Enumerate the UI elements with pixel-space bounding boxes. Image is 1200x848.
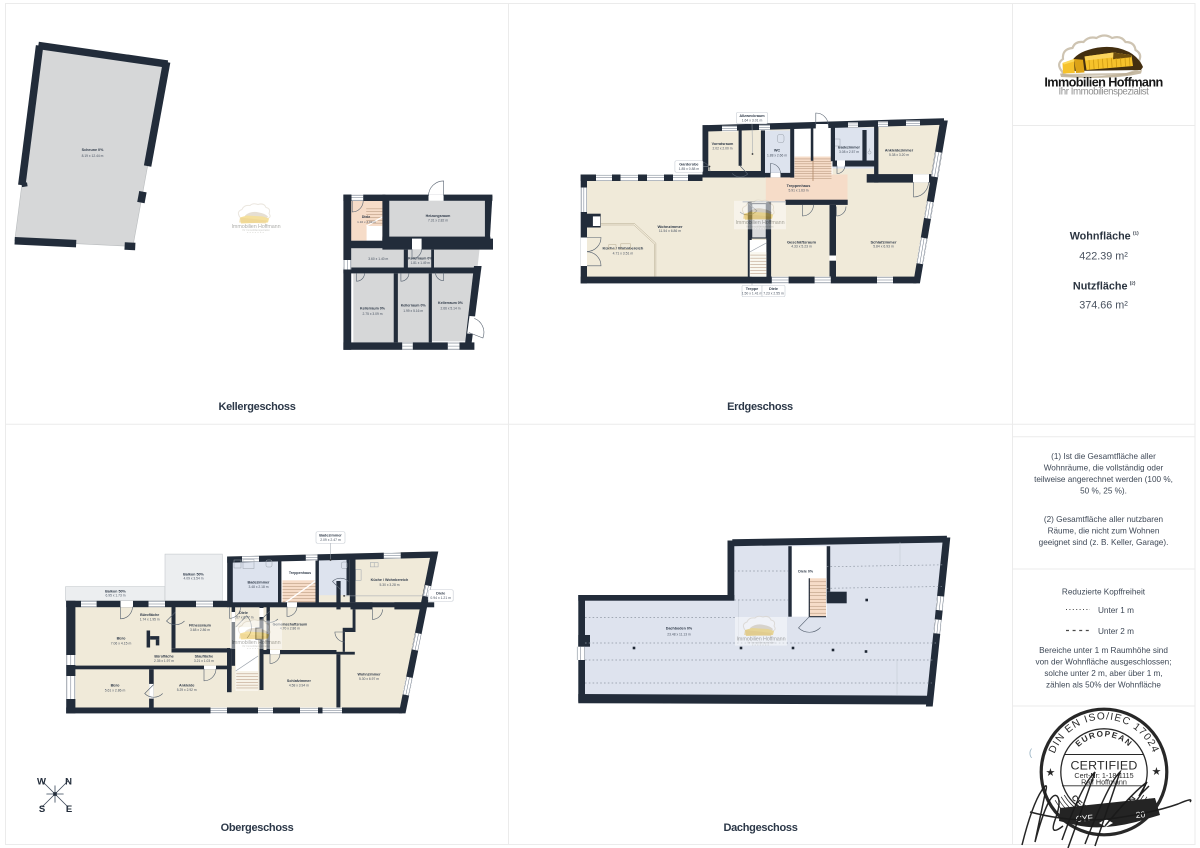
svg-text:4.71 x 3.51 m: 4.71 x 3.51 m	[613, 251, 634, 255]
svg-text:5.29 x 2.92 m: 5.29 x 2.92 m	[177, 688, 197, 692]
svg-text:1.64 x 3.01 m: 1.64 x 3.01 m	[742, 118, 763, 122]
svg-text:Badezimmer: Badezimmer	[319, 534, 342, 538]
svg-text:E: E	[66, 804, 72, 815]
svg-text:Ihr Immobilienspezialist: Ihr Immobilienspezialist	[1059, 86, 1150, 97]
svg-text:W: W	[37, 777, 46, 788]
svg-text:7.23 x 2.55 m: 7.23 x 2.55 m	[763, 291, 784, 295]
svg-text:Reduzierte Kopffreiheit: Reduzierte Kopffreiheit	[1062, 588, 1146, 597]
svg-text:2.75 x 3.09 m: 2.75 x 3.09 m	[363, 312, 383, 316]
svg-text:Ihr Immobilienspezialist: Ihr Immobilienspezialist	[243, 228, 270, 232]
svg-text:2.35 x 1.97 m: 2.35 x 1.97 m	[154, 659, 174, 663]
svg-text:Schlafzimmer: Schlafzimmer	[287, 679, 312, 683]
svg-text:Obergeschoss: Obergeschoss	[221, 822, 294, 834]
svg-text:8.19 x 12.44 m: 8.19 x 12.44 m	[82, 154, 104, 158]
svg-text:Ihr Immobilienspezialist: Ihr Immobilienspezialist	[243, 644, 270, 648]
svg-text:50 %, 25 %).: 50 %, 25 %).	[1080, 486, 1127, 495]
svg-text:Vorratsraum: Vorratsraum	[712, 142, 734, 146]
svg-text:5.30 x 6.97 m: 5.30 x 6.97 m	[359, 677, 379, 681]
svg-text:Treppenhaus: Treppenhaus	[787, 184, 811, 188]
svg-text:★: ★	[1152, 766, 1162, 778]
svg-text:Staufläche: Staufläche	[195, 655, 214, 659]
svg-text:Erdgeschoss: Erdgeschoss	[727, 401, 793, 413]
svg-text:Dachboden 0%: Dachboden 0%	[666, 626, 693, 630]
svg-text:Geschäftsraum: Geschäftsraum	[787, 239, 817, 244]
svg-text:geeignet sind (z. B. Keller, G: geeignet sind (z. B. Keller, Garage).	[1039, 538, 1169, 547]
svg-text:Bürofläche: Bürofläche	[154, 655, 173, 659]
svg-text:Heizungsraum: Heizungsraum	[426, 214, 451, 218]
svg-text:1.74 x 1.95 m: 1.74 x 1.95 m	[140, 618, 160, 622]
svg-text:3.48 x 2.18 m: 3.48 x 2.18 m	[249, 585, 269, 589]
svg-text:Bereiche unter 1 m Raumhöhe si: Bereiche unter 1 m Raumhöhe sind	[1039, 646, 1168, 655]
svg-text:Wohnräume, die vollständig ode: Wohnräume, die vollständig oder	[1044, 464, 1164, 473]
svg-text:1.81 x 1.49 m: 1.81 x 1.49 m	[411, 261, 431, 265]
svg-text:2.66 x 5.14 m: 2.66 x 5.14 m	[441, 306, 461, 310]
svg-text:von der Wohnfläche ausgeschlos: von der Wohnfläche ausgeschlossen;	[1036, 658, 1172, 667]
svg-text:Diele 0%: Diele 0%	[798, 569, 814, 573]
svg-text:Küche / Wohnbereich: Küche / Wohnbereich	[371, 578, 409, 582]
svg-text:Badezimmer: Badezimmer	[838, 146, 860, 150]
svg-text:1.99 x 5.16 m: 1.99 x 5.16 m	[403, 309, 423, 313]
svg-text:422.39 m²: 422.39 m²	[1079, 251, 1128, 263]
svg-text:WC: WC	[774, 149, 781, 153]
svg-text:1.85 x 0.88 m: 1.85 x 0.88 m	[679, 167, 700, 171]
svg-text:Diele: Diele	[436, 592, 445, 596]
svg-text:solche unter 2 m, aber über 1: solche unter 2 m, aber über 1 m,	[1044, 669, 1162, 678]
svg-text:4.33 x 5.23 m: 4.33 x 5.23 m	[791, 245, 812, 249]
svg-text:7.06 x 4.15 m: 7.06 x 4.15 m	[111, 641, 132, 645]
svg-text:Kellergeschoss: Kellergeschoss	[218, 401, 295, 413]
svg-text:1.88 x 2.66 m: 1.88 x 2.66 m	[767, 153, 787, 157]
svg-text:Fitnessraum: Fitnessraum	[189, 624, 212, 628]
svg-text:Balkon 50%: Balkon 50%	[105, 589, 126, 593]
svg-text:Ankleidezimmer: Ankleidezimmer	[885, 149, 914, 153]
svg-text:5.38 x 3.20 m: 5.38 x 3.20 m	[889, 153, 909, 157]
svg-text:N: N	[65, 777, 72, 788]
svg-text:Garderobe: Garderobe	[679, 163, 698, 167]
svg-text:Allzweckraum: Allzweckraum	[739, 114, 765, 118]
svg-text:Diele: Diele	[239, 611, 248, 615]
svg-text:S: S	[39, 804, 45, 815]
svg-text:Badezimmer: Badezimmer	[248, 581, 270, 585]
svg-text:Unter 2 m: Unter 2 m	[1098, 627, 1134, 636]
svg-text:Schlafzimmer: Schlafzimmer	[870, 239, 896, 244]
svg-text:6.95 x 1.73 m: 6.95 x 1.73 m	[106, 594, 126, 598]
svg-text:2.02 x 2.00 m: 2.02 x 2.00 m	[713, 146, 733, 150]
svg-text:Ihr Immobilienspezialist: Ihr Immobilienspezialist	[748, 641, 775, 645]
svg-text:3.21 x 1.03 m: 3.21 x 1.03 m	[194, 659, 214, 663]
svg-text:3.68 x 2.86 m: 3.68 x 2.86 m	[190, 628, 210, 632]
svg-text:(2) Gesamtfläche aller nutzbar: (2) Gesamtfläche aller nutzbaren	[1044, 515, 1164, 524]
svg-text:Wohnfläche: Wohnfläche	[1070, 231, 1131, 243]
svg-text:Balkon 50%: Balkon 50%	[183, 572, 204, 576]
svg-text:Diele: Diele	[769, 287, 778, 291]
svg-text:23.48 x 11.13 m: 23.48 x 11.13 m	[667, 633, 691, 637]
svg-text:(1): (1)	[1133, 230, 1139, 235]
svg-text:11.54 x 6.86 m: 11.54 x 6.86 m	[659, 229, 681, 233]
svg-text:5.91 x 1.63 m: 5.91 x 1.63 m	[789, 189, 809, 193]
svg-text:2.09 x 2.47 m: 2.09 x 2.47 m	[320, 538, 341, 542]
svg-text:374.66 m²: 374.66 m²	[1079, 300, 1128, 312]
svg-text:Dachgeschoss: Dachgeschoss	[723, 822, 797, 834]
svg-text:Ihr Immobilienspezialist: Ihr Immobilienspezialist	[747, 224, 774, 228]
svg-text:Büro: Büro	[111, 684, 121, 688]
svg-text:Ankleide: Ankleide	[179, 684, 194, 688]
svg-text:(2): (2)	[1130, 280, 1136, 285]
svg-text:Treppe: Treppe	[746, 287, 758, 291]
svg-text:Kellerraum 0%: Kellerraum 0%	[360, 307, 386, 311]
svg-text:Treppenhaus: Treppenhaus	[289, 571, 311, 575]
svg-text:Unter 1 m: Unter 1 m	[1098, 606, 1134, 615]
svg-text:5.30 x 3.28 m: 5.30 x 3.28 m	[380, 583, 400, 587]
svg-text:zählen als 50% der Wohnfläche: zählen als 50% der Wohnfläche	[1046, 680, 1161, 689]
svg-text:1.50 x 1.41 m: 1.50 x 1.41 m	[742, 291, 763, 295]
svg-text:5.84 x 6.93 m: 5.84 x 6.93 m	[873, 245, 894, 249]
svg-text:1.16 x 3.99 m: 1.16 x 3.99 m	[357, 220, 376, 224]
svg-text:Büro: Büro	[117, 637, 127, 641]
svg-text:Wohnzimmer: Wohnzimmer	[357, 672, 381, 676]
svg-text:Diele: Diele	[362, 215, 370, 219]
svg-text:4.09 x 3.54 m: 4.09 x 3.54 m	[184, 577, 204, 581]
svg-text:Räume, die nicht zum Wohnen: Räume, die nicht zum Wohnen	[1048, 527, 1160, 536]
svg-text:3.60 x 1.40 m: 3.60 x 1.40 m	[368, 257, 388, 261]
svg-text:4.70 x 2.86 m: 4.70 x 2.86 m	[280, 627, 300, 631]
svg-text:3.08 x 2.57 m: 3.08 x 2.57 m	[839, 150, 859, 154]
svg-text:7.31 x 2.82 m: 7.31 x 2.82 m	[428, 218, 448, 222]
svg-text:2.07 x 6.77 m: 2.07 x 6.77 m	[234, 616, 254, 620]
svg-text:Kellerraum 0%: Kellerraum 0%	[438, 301, 464, 305]
svg-text:teilweise angerechnet werden (: teilweise angerechnet werden (100 %,	[1034, 475, 1173, 484]
svg-text:Bürofläche: Bürofläche	[140, 613, 159, 617]
svg-text:5.61 x 2.86 m: 5.61 x 2.86 m	[105, 688, 126, 692]
svg-text:Kellerraum 0%: Kellerraum 0%	[401, 304, 427, 308]
svg-text:0.94 x 1.21 m: 0.94 x 1.21 m	[430, 596, 451, 600]
svg-text:Scheune 0%: Scheune 0%	[82, 148, 104, 152]
svg-text:4.58 x 3.94 m: 4.58 x 3.94 m	[289, 684, 309, 688]
svg-text:(1) Ist die Gesamtfläche aller: (1) Ist die Gesamtfläche aller	[1051, 452, 1156, 461]
svg-text:★: ★	[1046, 767, 1056, 779]
svg-text:Nutzfläche: Nutzfläche	[1073, 280, 1128, 292]
